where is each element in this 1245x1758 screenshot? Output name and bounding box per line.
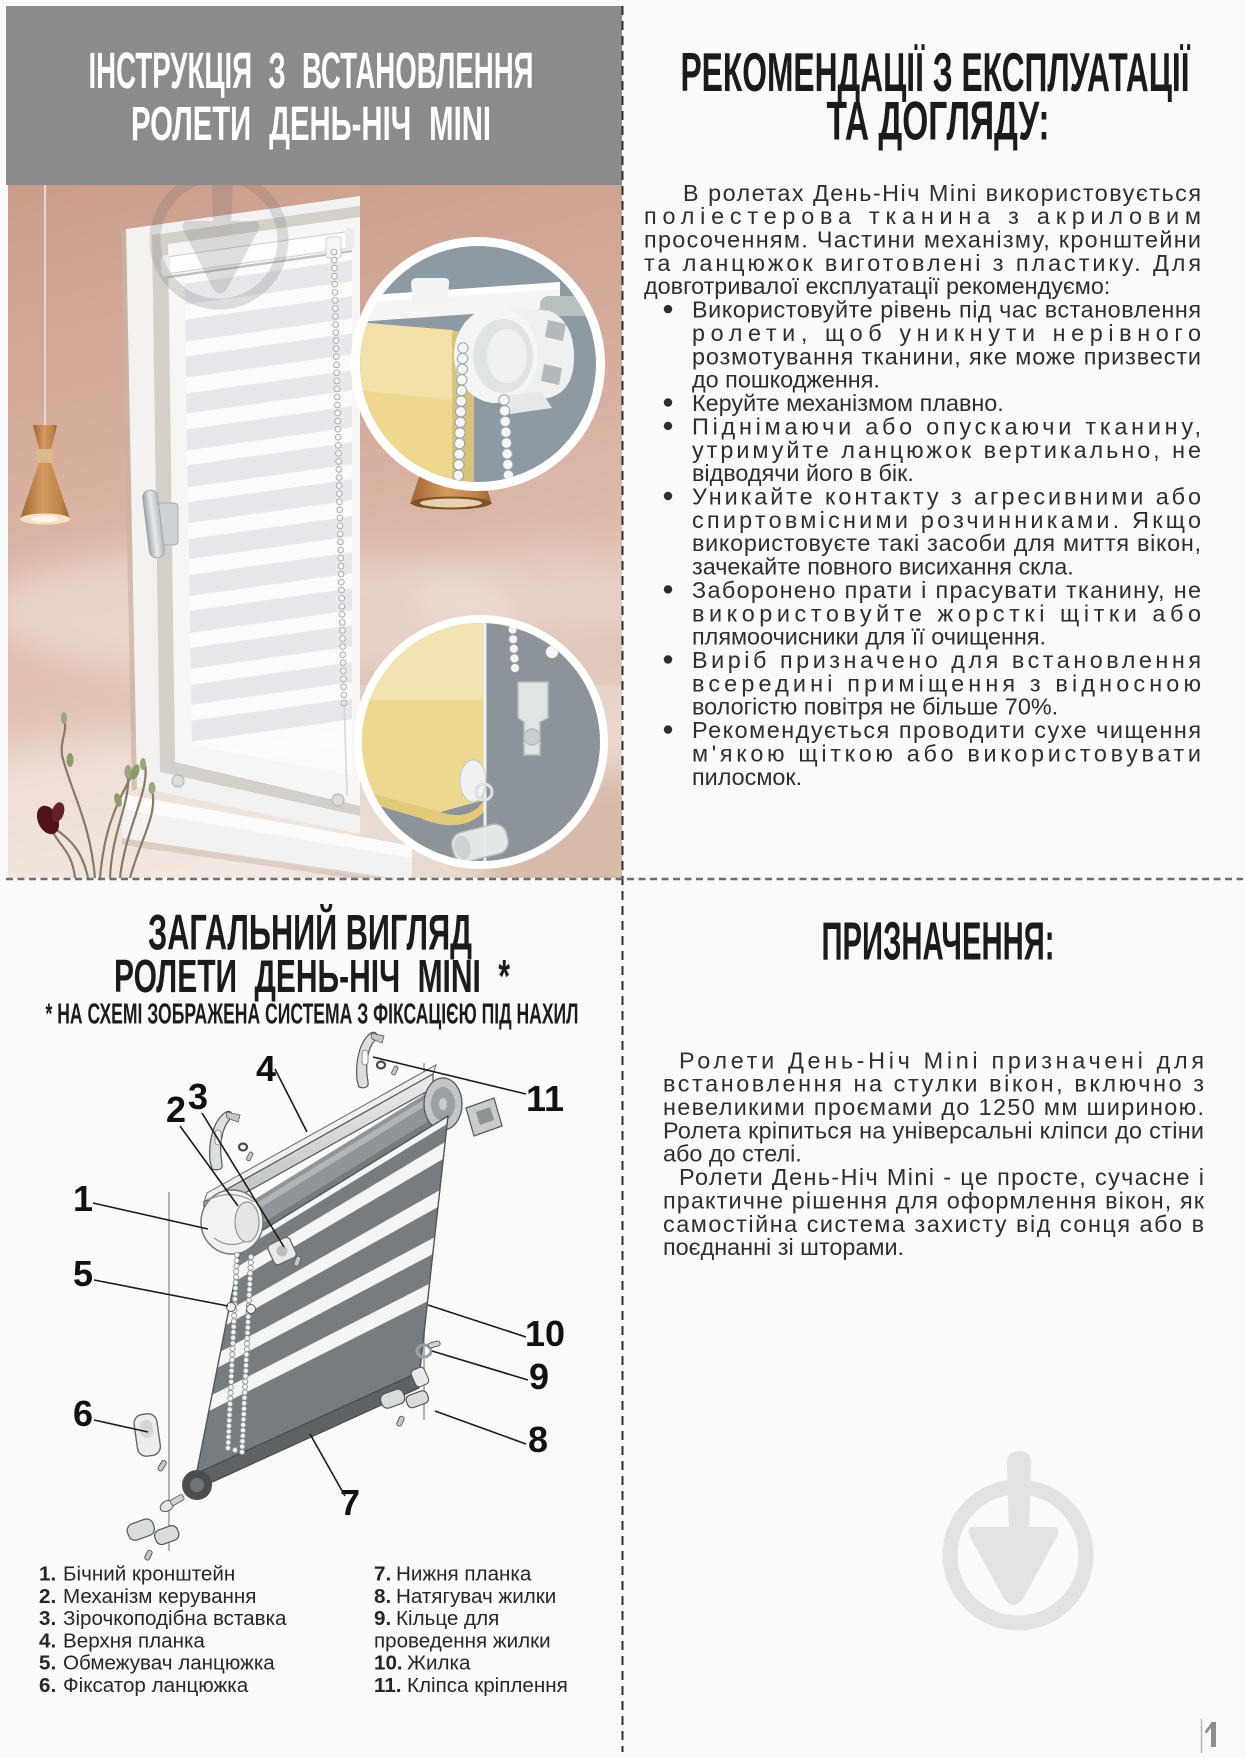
svg-text:9: 9 — [529, 1356, 549, 1397]
svg-text:пилосмок.: пилосмок. — [692, 764, 802, 790]
svg-text:1: 1 — [73, 1178, 93, 1219]
svg-text:7: 7 — [340, 1482, 360, 1523]
svg-text:5: 5 — [73, 1253, 93, 1294]
svg-text:Заборонено прати і прасувати т: Заборонено прати і прасувати тканину, не — [692, 577, 1201, 603]
svg-text:поєднанні зі шторами.: поєднанні зі шторами. — [663, 1234, 904, 1260]
svg-text:проведення жилки: проведення жилки — [374, 1629, 551, 1652]
svg-text:7.Нижня планка: 7.Нижня планка — [374, 1563, 532, 1586]
svg-text:та ланцюжок виготовлені з плас: та ланцюжок виготовлені з пластику. Для — [644, 250, 1201, 276]
svg-text:Рекомендується проводити сухе: Рекомендується проводити сухе чищення — [692, 717, 1201, 743]
svg-text:Використовуйте рівень під час: Використовуйте рівень під час встановлен… — [692, 297, 1201, 323]
svg-text:Піднімаючи або опускаючи ткани: Піднімаючи або опускаючи тканину, — [692, 413, 1201, 439]
svg-text:2.Механізм керування: 2.Механізм керування — [39, 1585, 256, 1608]
svg-text:Керуйте механізмом плавно.: Керуйте механізмом плавно. — [692, 390, 1004, 416]
svg-text:ролети, щоб уникнути нерівного: ролети, щоб уникнути нерівного — [692, 320, 1201, 346]
svg-text:вологістю повітря не більше 70: вологістю повітря не більше 70%. — [692, 694, 1058, 720]
svg-text:ПРИЗНАЧЕННЯ:: ПРИЗНАЧЕННЯ: — [822, 913, 1055, 972]
svg-text:самостійна система захисту від: самостійна система захисту від сонця або… — [663, 1211, 1204, 1237]
svg-text:використовуйте жорсткі щітки а: використовуйте жорсткі щітки або — [692, 600, 1201, 626]
svg-text:утримуйте ланцюжок вертикально: утримуйте ланцюжок вертикально, не — [692, 437, 1201, 463]
svg-text:зачекайте повного висихання ск: зачекайте повного висихання скла. — [692, 554, 1074, 580]
svg-text:8.Натягувач жилки: 8.Натягувач жилки — [374, 1585, 556, 1608]
svg-text:3: 3 — [188, 1076, 208, 1117]
svg-text:використовуєте такі засоби для: використовуєте такі засоби для миття вік… — [692, 530, 1201, 556]
svg-text:всередині приміщення з відносн: всередині приміщення з відносною — [692, 670, 1201, 696]
svg-text:8: 8 — [528, 1419, 548, 1460]
svg-text:2: 2 — [166, 1089, 186, 1130]
svg-text:5.Обмежувач ланцюжка: 5.Обмежувач ланцюжка — [39, 1652, 275, 1675]
svg-text:спиртовмісними розчинниками. Я: спиртовмісними розчинниками. Якщо — [692, 507, 1201, 533]
svg-text:РОЛЕТИ ДЕНЬ-НІЧ MINI *: РОЛЕТИ ДЕНЬ-НІЧ MINI * — [114, 950, 510, 1002]
svg-text:довготривалої експлуатації рек: довготривалої експлуатації рекомендуємо: — [644, 273, 1110, 299]
svg-text:ІНСТРУКЦІЯ З ВСТАНОВЛЕННЯ: ІНСТРУКЦІЯ З ВСТАНОВЛЕННЯ — [89, 42, 534, 99]
svg-text:практичне рішення для оформлен: практичне рішення для оформлення вікон, … — [663, 1188, 1205, 1214]
svg-text:відводячи його в бік.: відводячи його в бік. — [692, 460, 914, 486]
svg-text:до пошкодження.: до пошкодження. — [692, 367, 880, 393]
svg-text:10.Жилка: 10.Жилка — [374, 1652, 471, 1675]
svg-text:невеликими проємами до 1250 мм: невеликими проємами до 1250 мм шириною. — [663, 1094, 1204, 1120]
svg-text:11: 11 — [526, 1078, 564, 1119]
svg-text:плямоочисники для її очищення.: плямоочисники для її очищення. — [692, 624, 1046, 650]
svg-text:1.Бічний кронштейн: 1.Бічний кронштейн — [39, 1563, 235, 1586]
svg-text:розмотування тканини, яке може: розмотування тканини, яке може призвести — [692, 343, 1201, 369]
svg-text:просоченням. Частини механізму: просоченням. Частини механізму, кронштей… — [644, 227, 1201, 253]
svg-text:4: 4 — [256, 1048, 276, 1089]
svg-text:Ролета кріпиться на універсаль: Ролета кріпиться на універсальні кліпси … — [663, 1117, 1204, 1143]
svg-text:6.Фіксатор ланцюжка: 6.Фіксатор ланцюжка — [39, 1674, 249, 1697]
svg-text:6: 6 — [73, 1393, 93, 1434]
svg-text:3.Зірочкоподібна вставка: 3.Зірочкоподібна вставка — [39, 1607, 287, 1630]
svg-text:РОЛЕТИ ДЕНЬ-НІЧ MINI: РОЛЕТИ ДЕНЬ-НІЧ MINI — [131, 98, 491, 151]
svg-text:ТА ДОГЛЯДУ:: ТА ДОГЛЯДУ: — [827, 91, 1050, 152]
svg-text:В ролетах День-Ніч Mini викори: В ролетах День-Ніч Mini використовується — [683, 180, 1201, 206]
svg-text:* НА СХЕМІ ЗОБРАЖЕНА СИСТЕМА З: * НА СХЕМІ ЗОБРАЖЕНА СИСТЕМА З ФІКСАЦІЄЮ… — [46, 999, 579, 1031]
svg-text:4.Верхня планка: 4.Верхня планка — [39, 1629, 205, 1652]
svg-text:10: 10 — [525, 1313, 565, 1354]
svg-text:Ролети День-Ніч Mini - це прос: Ролети День-Ніч Mini - це просте, сучасн… — [679, 1164, 1204, 1190]
svg-text:або до стелі.: або до стелі. — [663, 1141, 802, 1167]
